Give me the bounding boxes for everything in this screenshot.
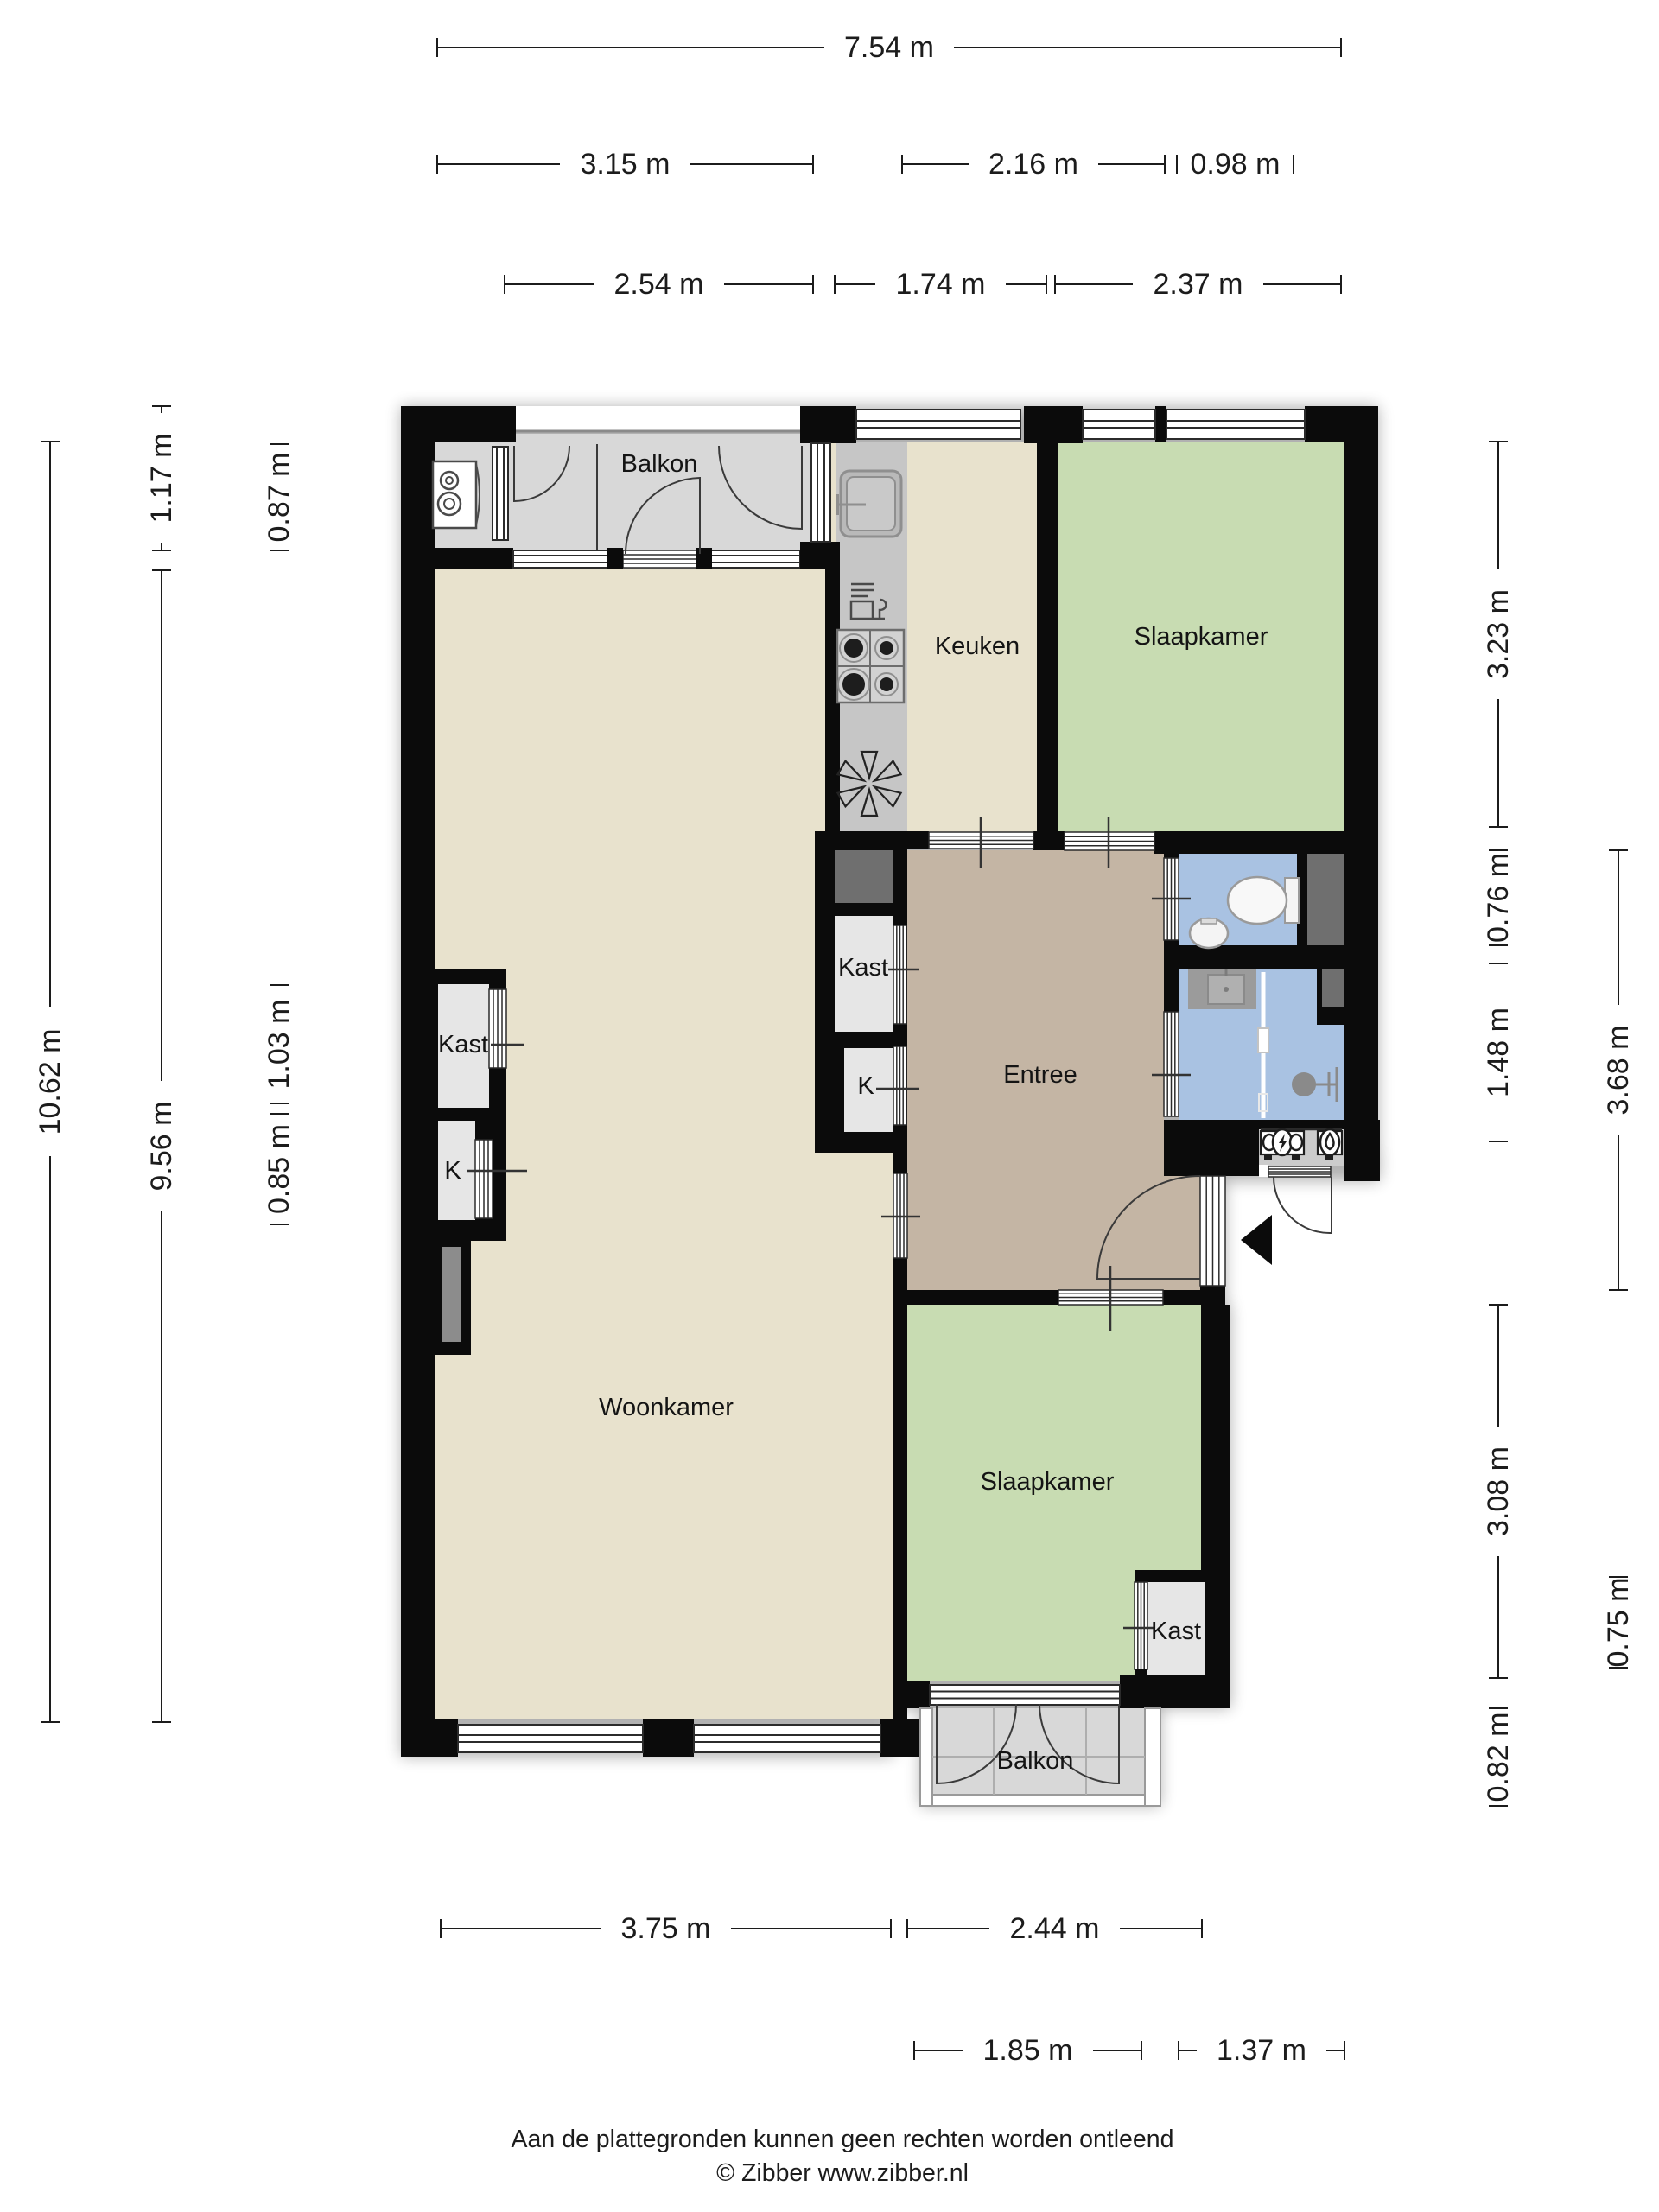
svg-text:9.56 m: 9.56 m [145, 1102, 178, 1192]
svg-text:3.08 m: 3.08 m [1482, 1446, 1515, 1536]
svg-text:1.74 m: 1.74 m [896, 268, 986, 301]
svg-text:2.37 m: 2.37 m [1154, 268, 1243, 301]
svg-text:Entree: Entree [1003, 1061, 1077, 1089]
svg-text:Kast: Kast [838, 954, 888, 982]
svg-text:Woonkamer: Woonkamer [599, 1394, 734, 1421]
svg-text:2.16 m: 2.16 m [988, 148, 1078, 181]
svg-text:2.44 m: 2.44 m [1010, 1912, 1100, 1945]
svg-text:K: K [444, 1157, 461, 1185]
svg-text:Slaapkamer: Slaapkamer [981, 1468, 1115, 1496]
svg-text:© Zibber www.zibber.nl: © Zibber www.zibber.nl [716, 2159, 969, 2187]
svg-text:1.17 m: 1.17 m [145, 434, 178, 524]
svg-text:0.98 m: 0.98 m [1191, 148, 1281, 181]
svg-text:Keuken: Keuken [935, 632, 1020, 660]
svg-text:Kast: Kast [438, 1031, 488, 1058]
svg-text:Aan de plattegronden kunnen ge: Aan de plattegronden kunnen geen rechten… [512, 2126, 1174, 2153]
svg-text:3.68 m: 3.68 m [1602, 1026, 1635, 1116]
svg-text:0.75 m: 0.75 m [1602, 1578, 1635, 1668]
svg-text:10.62 m: 10.62 m [34, 1029, 67, 1135]
svg-text:Kast: Kast [1151, 1618, 1201, 1645]
svg-text:Balkon: Balkon [997, 1747, 1074, 1775]
svg-text:Balkon: Balkon [621, 450, 698, 478]
svg-text:1.48 m: 1.48 m [1482, 1007, 1515, 1097]
svg-text:3.75 m: 3.75 m [621, 1912, 711, 1945]
svg-text:0.85 m: 0.85 m [263, 1124, 296, 1214]
svg-text:0.87 m: 0.87 m [263, 453, 296, 543]
svg-text:1.85 m: 1.85 m [983, 2034, 1073, 2067]
svg-text:3.15 m: 3.15 m [581, 148, 671, 181]
svg-text:2.54 m: 2.54 m [614, 268, 704, 301]
svg-text:1.37 m: 1.37 m [1217, 2034, 1306, 2067]
svg-text:1.03 m: 1.03 m [263, 1000, 296, 1090]
svg-text:0.76 m: 0.76 m [1482, 853, 1515, 943]
svg-text:3.23 m: 3.23 m [1482, 589, 1515, 679]
svg-text:K: K [857, 1072, 874, 1100]
svg-text:Slaapkamer: Slaapkamer [1135, 623, 1268, 651]
svg-text:0.82 m: 0.82 m [1482, 1713, 1515, 1802]
svg-text:7.54 m: 7.54 m [844, 31, 934, 64]
